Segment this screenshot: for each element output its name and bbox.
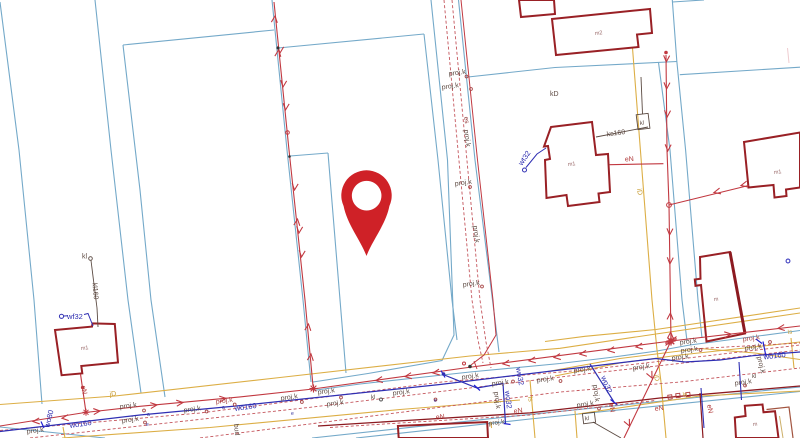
- svg-text:m1: m1: [568, 161, 576, 168]
- svg-text:proj.k: proj.k: [462, 129, 471, 147]
- svg-text:proj.k: proj.k: [491, 379, 509, 388]
- svg-text:proj.k: proj.k: [441, 82, 459, 91]
- svg-text:proj.k: proj.k: [454, 179, 472, 188]
- svg-text:wo160: wo160: [233, 401, 257, 413]
- svg-text:ls: ls: [787, 329, 792, 336]
- svg-text:proj.k: proj.k: [742, 334, 760, 343]
- svg-text:wo80: wo80: [42, 409, 56, 430]
- svg-text:e: e: [434, 398, 437, 404]
- svg-text:ls: ls: [526, 396, 534, 403]
- svg-text:es: es: [462, 116, 470, 125]
- svg-text:kl: kl: [371, 395, 375, 401]
- svg-text:bud: bud: [232, 423, 240, 435]
- svg-text:wo32: wo32: [514, 366, 526, 386]
- svg-text:iD: iD: [635, 188, 643, 196]
- svg-text:proj.k: proj.k: [119, 402, 137, 411]
- svg-text:iD: iD: [652, 374, 660, 382]
- svg-text:wo160: wo160: [762, 350, 786, 362]
- svg-text:eN: eN: [654, 405, 664, 413]
- svg-text:eN: eN: [705, 404, 714, 414]
- svg-text:eN: eN: [435, 414, 445, 422]
- svg-text:proj.k: proj.k: [448, 69, 466, 78]
- svg-text:proj.k: proj.k: [734, 378, 752, 387]
- svg-text:wt32: wt32: [516, 149, 533, 168]
- svg-text:wf32: wf32: [66, 312, 83, 321]
- svg-text:a: a: [147, 412, 150, 418]
- svg-text:proj.k: proj.k: [632, 363, 650, 373]
- svg-text:e: e: [291, 411, 294, 417]
- svg-text:m2: m2: [595, 30, 603, 37]
- svg-text:proj.k: proj.k: [326, 399, 344, 408]
- svg-text:jD: jD: [108, 391, 117, 399]
- svg-text:m1: m1: [774, 169, 782, 176]
- svg-text:proj.k: proj.k: [392, 388, 410, 397]
- svg-text:proj.k: proj.k: [744, 343, 762, 352]
- svg-text:kD: kD: [550, 91, 559, 98]
- svg-text:m: m: [753, 421, 759, 427]
- svg-text:eN: eN: [607, 403, 616, 413]
- svg-text:eN: eN: [79, 385, 88, 395]
- svg-text:e: e: [146, 422, 149, 428]
- svg-text:kl160: kl160: [91, 283, 99, 300]
- svg-text:kl: kl: [640, 121, 645, 127]
- svg-text:a: a: [222, 405, 225, 411]
- svg-text:ls: ls: [682, 392, 687, 399]
- svg-text:kl: kl: [752, 374, 756, 380]
- svg-text:m: m: [714, 296, 720, 302]
- svg-text:m1: m1: [81, 345, 89, 352]
- svg-text:proj.k: proj.k: [536, 375, 554, 384]
- svg-text:eN: eN: [513, 407, 523, 415]
- svg-text:ks160: ks160: [606, 129, 626, 139]
- svg-text:proj.k: proj.k: [492, 391, 501, 409]
- svg-text:kl: kl: [585, 416, 590, 422]
- svg-text:proj.k: proj.k: [121, 416, 139, 425]
- svg-text:wo160: wo160: [68, 418, 92, 430]
- svg-text:proj.k: proj.k: [317, 387, 335, 396]
- svg-text:wo32: wo32: [599, 373, 614, 394]
- svg-text:proj.k: proj.k: [671, 353, 689, 362]
- svg-text:eN: eN: [625, 156, 634, 164]
- svg-text:proj.k: proj.k: [471, 225, 480, 243]
- svg-text:proj.k: proj.k: [488, 418, 505, 427]
- svg-text:proj.k: proj.k: [462, 280, 480, 289]
- svg-text:proj.k: proj.k: [26, 426, 44, 435]
- svg-text:kl: kl: [82, 254, 88, 261]
